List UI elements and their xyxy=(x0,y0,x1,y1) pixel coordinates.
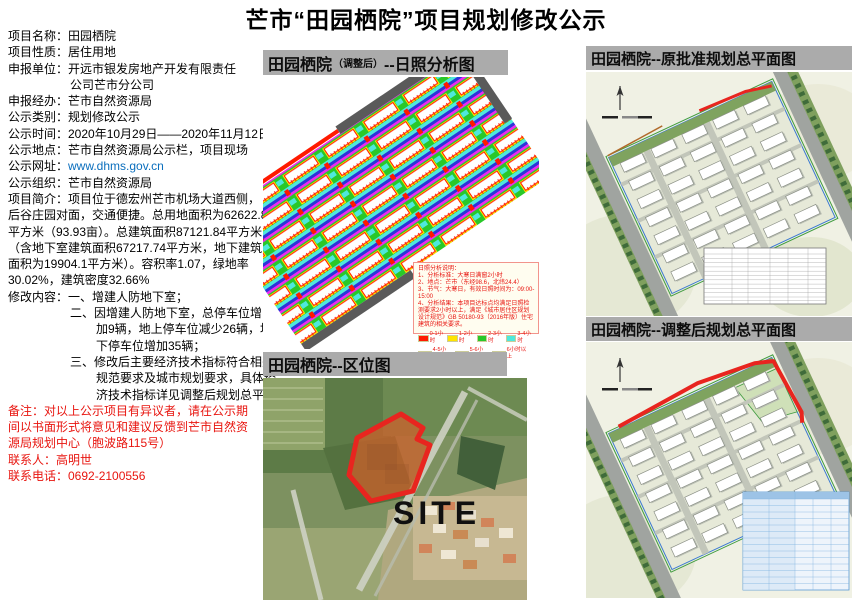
legend-swatch: 1-2小时 xyxy=(447,331,472,345)
swatch-color xyxy=(506,335,517,342)
info-line: 公司芒市分公司 xyxy=(8,77,260,93)
swatch-color xyxy=(447,335,458,342)
info-line: 三、修改后主要经济技术指标符合相关 xyxy=(8,354,260,370)
info-line: 济技术指标详见调整后规划总平面图。 xyxy=(8,387,260,403)
scale-bar xyxy=(602,388,652,391)
info-line: 申报单位：开远市银发房地产开发有限责任 xyxy=(8,61,260,77)
info-line: 修改内容：一、增建人防地下室； xyxy=(8,289,260,305)
legend-heading: 日照分析说明： xyxy=(418,266,535,273)
info-line: 项目简介：项目位于德宏州芒市机场大道西侧， xyxy=(8,191,260,207)
indicators-table xyxy=(704,248,826,304)
indicators-table xyxy=(743,492,849,590)
swatch-label: 1-2小时 xyxy=(459,331,473,345)
panel-title-text: 田园栖院--调整后规划总平面图 xyxy=(591,319,796,340)
info-line: 后谷庄园对面，交通便捷。总用地面积为62622.86 xyxy=(8,207,260,223)
info-line: 公示类别：规划修改公示 xyxy=(8,109,260,125)
url-label: 公示网址： xyxy=(8,159,68,173)
legend-note: 3、节气：大寒日，有效日照时间为：09:00-15:00 xyxy=(418,287,535,301)
swatch-color xyxy=(477,335,488,342)
location-map: SITE xyxy=(263,378,527,600)
info-line: （含地下室建筑面积67217.74平方米，地下建筑 xyxy=(8,240,260,256)
contact-phone: 联系电话：0692-2100556 xyxy=(8,468,260,484)
info-line: 公示时间：2020年10月29日——2020年11月12日 xyxy=(8,126,260,142)
remark-line: 源局规划中心（胞波路115号） xyxy=(8,435,260,451)
info-line: 项目名称：田园栖院 xyxy=(8,28,260,44)
remark-line: 间以书面形式将意见和建议反馈到芒市自然资 xyxy=(8,419,260,435)
scale-bar xyxy=(602,116,652,119)
site-label: SITE xyxy=(393,495,480,531)
swatch-label: 0-1小时 xyxy=(430,331,444,345)
info-line: 面积为19904.1平方米）。容积率1.07，绿地率 xyxy=(8,256,260,272)
legend-swatch: 3-4小时 xyxy=(506,331,531,345)
info-line: 公示组织：芒市自然资源局 xyxy=(8,175,260,191)
swatch-label: 2-3小时 xyxy=(488,331,502,345)
original-site-plan xyxy=(586,72,852,316)
swatch-label: 6小时以上 xyxy=(507,347,531,361)
panel-title-text: --日照分析图 xyxy=(384,51,475,75)
publicity-url-link[interactable]: www.dhms.gov.cn xyxy=(68,159,164,173)
info-line: 项目性质：居住用地 xyxy=(8,44,260,60)
info-line: 规范要求及城市规划要求，具体经 xyxy=(8,370,260,386)
panel-title-text: 田园栖院--区位图 xyxy=(268,352,391,376)
legend-note: 4、分析结果：本项目达标点均满足日照检测要求2小时以上，满足《城市居住区规划设计… xyxy=(418,301,535,329)
contact-person: 联系人：高明世 xyxy=(8,452,260,468)
panel-title-text: 田园栖院--原批准规划总平面图 xyxy=(591,48,796,69)
panel-title-adjusted-plan: 田园栖院--调整后规划总平面图 xyxy=(586,317,852,341)
legend-swatch: 0-1小时 xyxy=(418,331,443,345)
info-line-url: 公示网址：www.dhms.gov.cn xyxy=(8,158,260,174)
info-line: 加9辆，地上停车位减少26辆，地 xyxy=(8,321,260,337)
info-line: 申报经办：芒市自然资源局 xyxy=(8,93,260,109)
info-line: 公示地点：芒市自然资源局公示栏，项目现场 xyxy=(8,142,260,158)
info-line: 下停车位增加35辆； xyxy=(8,338,260,354)
panel-title-sunshine-analysis: 田园栖院（调整后）--日照分析图 xyxy=(263,50,508,75)
panel-title-paren: （调整后） xyxy=(333,55,383,70)
remark-line: 备注：对以上公示项目有异议者，请在公示期 xyxy=(8,403,260,419)
adjusted-site-plan xyxy=(586,342,852,598)
info-line: 平方米（93.93亩）。总建筑面积87121.84平方米 xyxy=(8,224,260,240)
swatch-color xyxy=(418,335,429,342)
info-line: 二、因增建人防地下室，总停车位增 xyxy=(8,305,260,321)
panel-title-location-map: 田园栖院--区位图 xyxy=(263,352,507,376)
info-line: 30.02%，建筑密度32.66% xyxy=(8,272,260,288)
notice-info-panel: 项目名称：田园栖院 项目性质：居住用地 申报单位：开远市银发房地产开发有限责任 … xyxy=(8,28,260,484)
swatch-label: 3-4小时 xyxy=(517,331,531,345)
legend-note: 2、地点：芒市（东经98.6，北纬24.4） xyxy=(418,280,535,287)
panel-title-original-plan: 田园栖院--原批准规划总平面图 xyxy=(586,46,852,70)
sunshine-legend: 日照分析说明： 1、分析标准：大寒日满窗2小时 2、地点：芒市（东经98.6，北… xyxy=(413,262,539,334)
legend-swatch: 2-3小时 xyxy=(477,331,502,345)
legend-note: 1、分析标准：大寒日满窗2小时 xyxy=(418,273,535,280)
panel-title-text: 田园栖院 xyxy=(268,51,332,75)
